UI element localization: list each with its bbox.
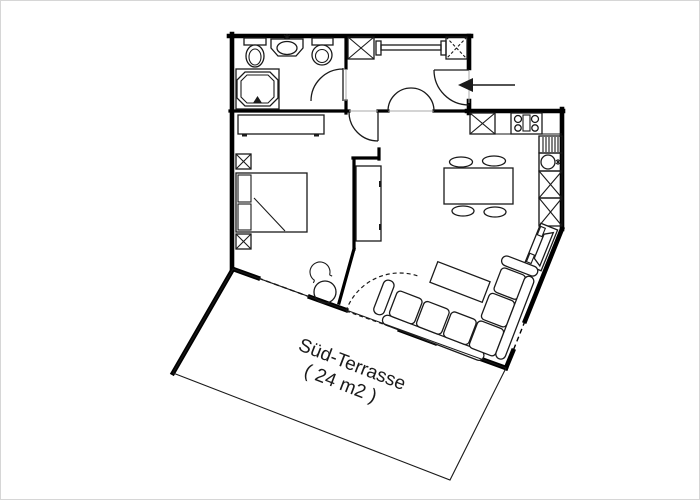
bathroom [236,34,333,109]
dining-chair-icon [450,157,473,167]
kitchen-cabinet-icon [470,113,495,134]
nightstand-icon [236,234,251,249]
kitchen-cabinet-icon [539,198,562,226]
clothes-rail-icon [376,41,446,55]
chair-icon [307,259,332,283]
bed-icon [236,173,307,232]
coffee-table-icon [430,262,490,303]
living-room-door [388,88,434,111]
dining-chair-icon [483,156,506,166]
toilet-icon [244,38,266,67]
drawer-unit-icon [539,136,562,153]
kitchen-cabinet-icon [539,171,562,198]
floor-plan-drawing: Süd-Terrasse ( 24 m2 ) [1,1,700,501]
toilet-icon [312,38,333,65]
stove-icon [511,113,542,134]
nightstand-icon [236,154,251,169]
dining-table-icon [444,168,513,204]
dining-chair-icon [484,207,506,217]
cabinet-icon [356,166,382,241]
closet-icon [348,37,374,59]
dining-chair-icon [452,206,474,216]
sink-icon [539,153,562,171]
shower-icon [236,69,279,109]
closet-icon [446,37,467,59]
terrace-label: Süd-Terrasse ( 24 m2 ) [288,335,409,416]
bathroom-door [311,68,343,101]
dining-area [444,156,513,217]
door-thresholds [346,69,469,111]
hallway [348,37,467,59]
floor-plan-page: Süd-Terrasse ( 24 m2 ) [0,0,700,500]
entrance-arrow-icon [458,78,515,92]
wardrobe-icon [238,115,324,137]
bedroom-door [349,112,378,141]
sofa-icon [370,218,539,369]
